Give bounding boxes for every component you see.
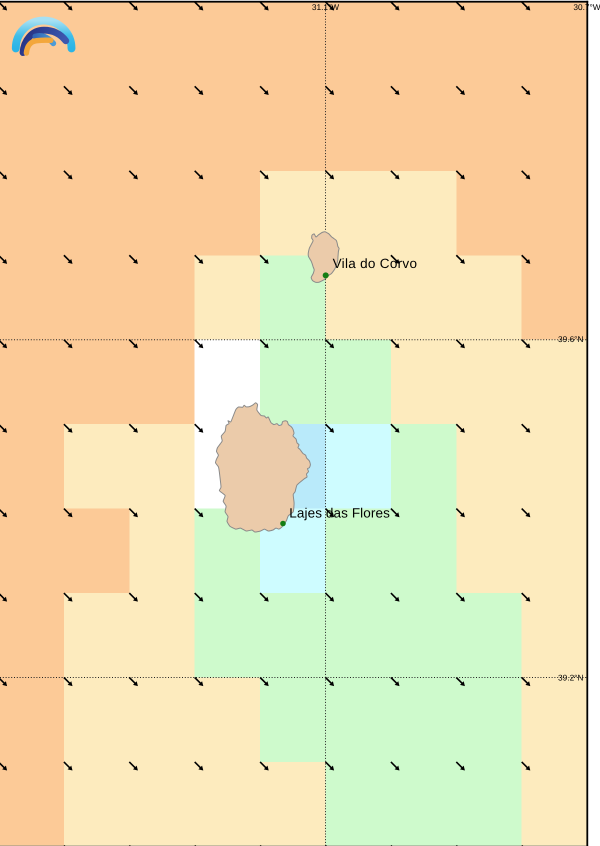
svg-text:39.2°N: 39.2°N	[558, 673, 583, 683]
svg-text:31.1°W: 31.1°W	[312, 2, 339, 12]
svg-text:39.6°N: 39.6°N	[558, 334, 583, 344]
svg-text:Lajes das Flores: Lajes das Flores	[289, 506, 390, 521]
svg-text:Vila do Corvo: Vila do Corvo	[333, 256, 418, 271]
svg-text:30.7°W: 30.7°W	[573, 2, 600, 12]
